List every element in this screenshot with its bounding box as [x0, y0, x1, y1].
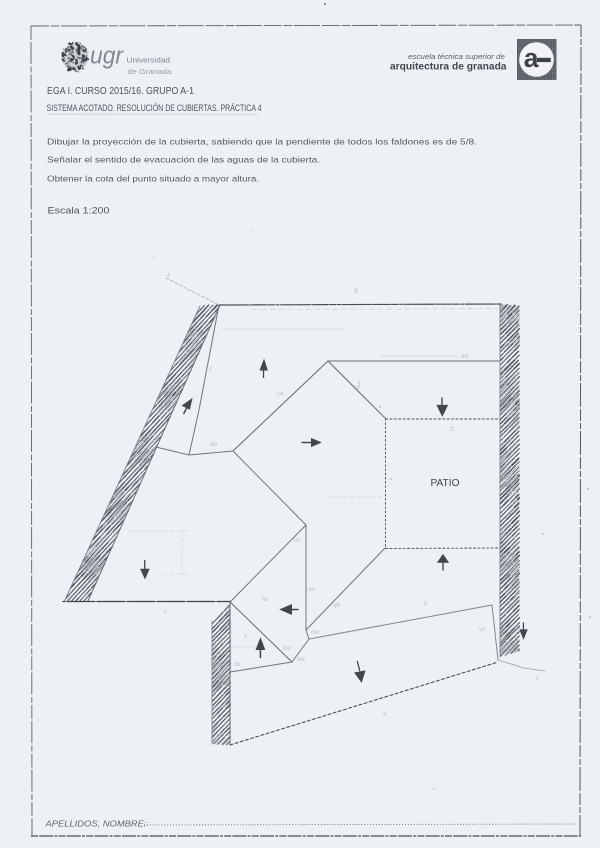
svg-text:lw: lw — [262, 596, 268, 603]
svg-text:D: D — [450, 426, 455, 433]
svg-text:Escala 1:200: Escala 1:200 — [48, 205, 110, 216]
svg-text:Dibujar la proyección de la cu: Dibujar la proyección de la cubierta, sa… — [47, 137, 477, 147]
svg-text:e: e — [383, 711, 387, 718]
svg-text:aw: aw — [297, 656, 306, 663]
svg-text:de Granada: de Granada — [128, 67, 173, 76]
svg-text:a: a — [524, 43, 539, 73]
svg-text:Obtener la cota del punto situ: Obtener la cota del punto situado a mayo… — [47, 174, 259, 184]
svg-text:1: 1 — [167, 271, 171, 278]
svg-text:EGA I. CURSO 2015/16. GRUPO A-: EGA I. CURSO 2015/16. GRUPO A-1 — [47, 86, 194, 97]
svg-text:APELLIDOS, NOMBRE:: APELLIDOS, NOMBRE: — [44, 820, 146, 829]
svg-text:B: B — [354, 288, 358, 295]
svg-text:ce: ce — [277, 390, 284, 397]
svg-text:ugr: ugr — [90, 43, 124, 70]
svg-text:Señalar el sentido de evacuaci: Señalar el sentido de evacuación de las … — [47, 155, 320, 165]
svg-text:arquitectura de granada: arquitectura de granada — [390, 61, 507, 72]
svg-text:gb: gb — [333, 602, 341, 609]
svg-text:vz: vz — [479, 626, 486, 633]
svg-text:au: au — [308, 586, 316, 593]
svg-text:b: b — [424, 600, 428, 607]
svg-text:escuela técnica superior de: escuela técnica superior de — [408, 52, 505, 61]
svg-text:cw: cw — [293, 537, 301, 544]
svg-text:PATIO: PATIO — [431, 478, 460, 489]
svg-text:SISTEMA ACOTADO. RESOLUCIÓN DE: SISTEMA ACOTADO. RESOLUCIÓN DE CUBIERTAS… — [47, 103, 262, 114]
svg-text:hw: hw — [311, 629, 320, 636]
svg-text:ad: ad — [461, 353, 469, 360]
svg-text:kw: kw — [283, 645, 291, 652]
svg-text:Universidad: Universidad — [127, 55, 171, 64]
svg-text:ab: ab — [210, 441, 218, 448]
svg-text:bx: bx — [234, 661, 242, 668]
